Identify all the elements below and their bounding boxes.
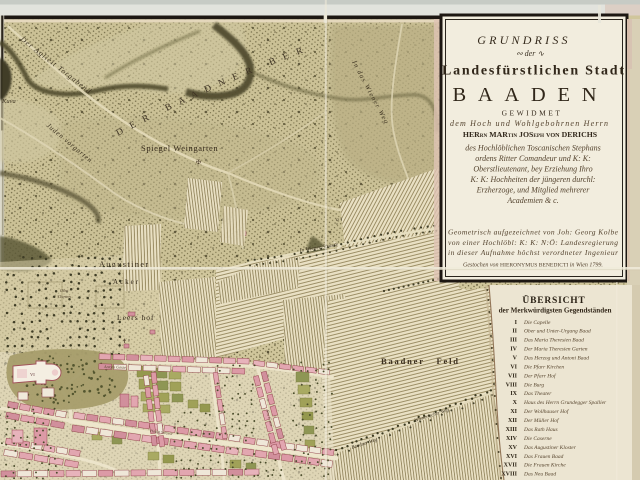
svg-text:in dieser Aufnahme höchst vero: in dieser Aufnahme höchst verordneter In… [448, 248, 618, 257]
svg-text:✝: ✝ [122, 338, 127, 345]
svg-text:VIII: VIII [506, 382, 518, 388]
svg-text:XV: XV [508, 445, 517, 451]
svg-text:Erzherzoge, und Mitglied mehre: Erzherzoge, und Mitglied mehrerer [476, 186, 591, 195]
svg-text:Oberstlieutenant, bey Erziehun: Oberstlieutenant, bey Erziehung Ihro [473, 165, 592, 174]
svg-text:Der Wollhauser Hof: Der Wollhauser Hof [523, 408, 570, 415]
svg-text:Landesfürstlichen Stadt: Landesfürstlichen Stadt [442, 64, 624, 79]
svg-text:Die Pfarr Kirchen: Die Pfarr Kirchen [523, 363, 564, 370]
svg-text:XVIII: XVIII [501, 472, 517, 478]
svg-text:IV: IV [510, 347, 517, 353]
svg-text:II: II [512, 329, 517, 335]
svg-text:Die Burg: Die Burg [523, 382, 544, 388]
svg-text:K: K: Hochheiten der jüngeren: K: K: Hochheiten der jüngeren durchl: [470, 175, 596, 184]
svg-text:Das Neu Baad: Das Neu Baad [523, 472, 556, 478]
svg-text:Kuva: Kuva [1, 98, 16, 105]
svg-text:GRUNDRISS: GRUNDRISS [477, 33, 570, 47]
svg-text:Obst: Obst [60, 288, 69, 293]
svg-text:Ober und Unter-Urgang Baad: Ober und Unter-Urgang Baad [524, 329, 591, 335]
svg-text:dem Hoch und Wohlgebohrnen Her: dem Hoch und Wohlgebohrnen Herrn [450, 119, 608, 128]
svg-text:XVI: XVI [506, 454, 518, 460]
svg-text:Die Capelle: Die Capelle [523, 320, 551, 326]
svg-text:Antons Gasse: Antons Gasse [103, 364, 126, 370]
svg-text:IX: IX [510, 391, 517, 397]
svg-text:X: X [513, 400, 518, 406]
svg-text:Der Maria Theresien Garten: Der Maria Theresien Garten [523, 347, 588, 353]
svg-text:VI: VI [510, 364, 517, 370]
svg-text:Geometrisch aufgezeichnet von: Geometrisch aufgezeichnet von Joh: Georg… [448, 228, 619, 237]
svg-text:XIV: XIV [506, 436, 518, 442]
svg-text:Spiegel Weingarten: Spiegel Weingarten [141, 143, 218, 153]
svg-text:Haus des Herrn Grundegger Spal: Haus des Herrn Grundegger Spallier [523, 400, 607, 406]
svg-text:VI: VI [30, 372, 35, 377]
svg-text:∾ der ∿: ∾ der ∿ [516, 49, 544, 58]
svg-text:des Hochlöblichen Toscanischen: des Hochlöblichen Toscanischen Stephans [465, 144, 600, 153]
svg-text:Leers hof: Leers hof [117, 313, 155, 322]
svg-text:Die Caserne: Die Caserne [523, 436, 552, 442]
svg-text:Baadner Feld: Baadner Feld [381, 356, 460, 366]
svg-text:Das Frauen Baad: Das Frauen Baad [523, 454, 564, 460]
svg-text:XVII: XVII [504, 463, 518, 469]
svg-text:Das Rath Haus: Das Rath Haus [523, 427, 558, 433]
svg-text:Acker: Acker [113, 278, 140, 286]
svg-text:Academien & c.: Academien & c. [506, 196, 558, 205]
svg-text:Das Maria Theresien Baad: Das Maria Theresien Baad [523, 338, 584, 344]
svg-text:ordens Ritter Comandeur und K:: ordens Ritter Comandeur und K: K: [475, 154, 591, 163]
svg-text:XII: XII [508, 418, 518, 424]
svg-text:Das Herzog und Antoni Baad: Das Herzog und Antoni Baad [523, 356, 589, 362]
svg-text:XI: XI [510, 409, 517, 415]
svg-text:von einer Hochlöbl: K: K: N:Ö:: von einer Hochlöbl: K: K: N:Ö: Landesreg… [448, 238, 618, 247]
svg-text:Das Theater: Das Theater [523, 391, 552, 397]
svg-text:Der Pfarr Hof: Der Pfarr Hof [523, 372, 557, 379]
svg-text:✠: ✠ [196, 159, 201, 166]
svg-text:V: V [513, 356, 518, 362]
svg-text:XIII: XIII [506, 427, 518, 433]
svg-text:Der Müller Hof: Der Müller Hof [523, 417, 560, 424]
svg-text:VII: VII [508, 373, 518, 379]
svg-text:Die Frauen Kirche: Die Frauen Kirche [523, 463, 566, 469]
svg-text:der Merkwürdigsten Gegendständ: der Merkwürdigsten Gegendständen [499, 307, 612, 315]
svg-text:Das Augustiner Kloster: Das Augustiner Kloster [523, 445, 577, 451]
svg-text:GEWIDMET: GEWIDMET [502, 109, 563, 118]
svg-text:III: III [510, 338, 518, 344]
